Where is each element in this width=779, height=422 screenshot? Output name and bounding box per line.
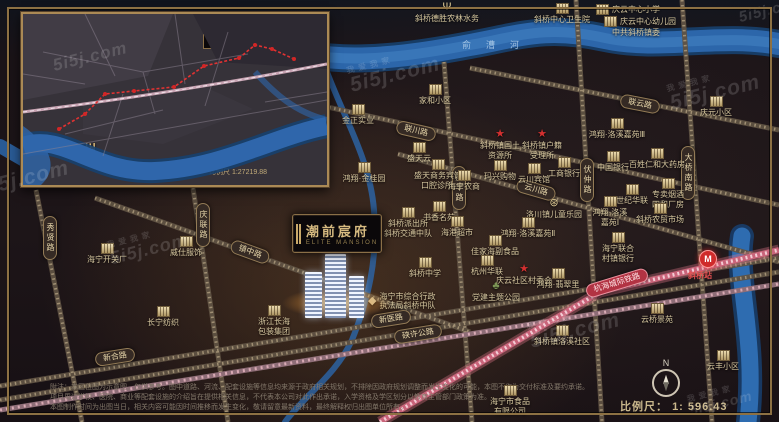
- map-poi: 云桥景苑: [612, 303, 702, 324]
- building-icon: [413, 142, 426, 153]
- supermarket-icon: [451, 216, 464, 227]
- map-poi: 海宁开关厂: [62, 243, 152, 264]
- project-name-en: ELITE MANSION: [306, 240, 378, 246]
- building-icon: [552, 268, 565, 279]
- project-logo-badge: 潮前宸府 ELITE MANSION: [292, 214, 382, 253]
- pharmacy-icon: [651, 148, 664, 159]
- building-icon: [710, 96, 723, 107]
- map-poi: 百姓仁和大药房: [612, 148, 702, 169]
- map-poi: 威仕服饰: [141, 236, 231, 257]
- ferris-wheel-icon: ⊛: [549, 198, 558, 209]
- map-poi: ♣党建主题公园: [451, 281, 541, 302]
- factory-icon: [101, 243, 114, 254]
- hotel-icon: [432, 159, 445, 170]
- building-icon: [358, 162, 371, 173]
- location-map: 俞漕河 联云路 联川路 云川路 镇中路 新合路 新医路 硖许公路 杭海城际铁路 …: [0, 0, 779, 422]
- building-icon: [556, 3, 569, 14]
- bank-icon: [612, 232, 625, 243]
- tree-icon: ♣: [492, 281, 499, 292]
- map-poi: 中共斜桥镇委: [612, 28, 660, 37]
- map-poi: 海宁联合村镇银行: [573, 232, 663, 264]
- map-poi: 佳家海副食品: [450, 235, 540, 256]
- map-poi: 家和小区: [390, 84, 480, 105]
- compass-ring-icon: [652, 369, 680, 397]
- shop-icon: [662, 178, 675, 189]
- map-poi: 海宁农商: [419, 170, 509, 191]
- compass-n-label: N: [663, 358, 670, 368]
- building-icon: [522, 217, 535, 228]
- plant-icon: Ψ: [442, 2, 451, 13]
- project-towers: [305, 244, 369, 318]
- map-poi: 庆云中心幼儿园: [604, 16, 676, 27]
- tower-icon: [325, 254, 346, 318]
- building-icon: [352, 104, 365, 115]
- compass: N: [651, 358, 681, 397]
- star-icon: ★: [537, 129, 547, 140]
- tower-icon: [305, 272, 322, 318]
- map-poi: 云丰小区: [678, 350, 768, 371]
- map-poi: 斜桥镇洛溪社区: [517, 325, 607, 346]
- project-name: 潮前宸府: [306, 221, 378, 240]
- map-poi: 庆元小区: [671, 96, 761, 117]
- map-poi: 鸿翔·金桂园: [319, 162, 409, 183]
- map-poi: 斜桥中心卫生院: [517, 3, 607, 24]
- scale-bar: 比例尺： 1: 596.43: [620, 398, 728, 414]
- map-poi: Ψ斜桥德胜农林水务: [402, 2, 492, 23]
- metro-station-marker: M: [699, 250, 717, 268]
- map-poi: 庆云中心小学: [596, 4, 660, 15]
- metro-station-label: 斜桥站: [688, 270, 712, 281]
- building-icon: [651, 303, 664, 314]
- building-icon: [556, 325, 569, 336]
- building-icon: [429, 84, 442, 95]
- factory-icon: [157, 306, 170, 317]
- building-icon: [611, 118, 624, 129]
- map-poi: 海宁市食品有限公司: [465, 385, 555, 417]
- bank-icon: [458, 170, 471, 181]
- logo-bars-icon: [296, 224, 301, 244]
- factory-icon: [180, 236, 193, 247]
- inset-overview-map: N 海宁 杭州 潮前宸府 比例尺 1:27219.88: [21, 12, 329, 187]
- building-icon: [604, 196, 617, 207]
- school-icon: [596, 4, 609, 15]
- road-label-xiuxian: 秀贤路: [43, 216, 57, 260]
- factory-icon: [504, 385, 517, 396]
- school-icon: [419, 257, 432, 268]
- tower-icon: [349, 276, 364, 318]
- kindergarten-icon: [604, 16, 617, 27]
- map-poi: 斜桥中学: [380, 257, 470, 278]
- inset-map-graphic: [23, 14, 327, 185]
- map-poi: 长宁纺织: [118, 306, 208, 327]
- river-label: 俞漕河: [462, 38, 534, 51]
- map-poi: 海港超市: [412, 216, 502, 237]
- market-icon: [654, 203, 667, 214]
- building-icon: [717, 350, 730, 361]
- factory-icon: [268, 305, 281, 316]
